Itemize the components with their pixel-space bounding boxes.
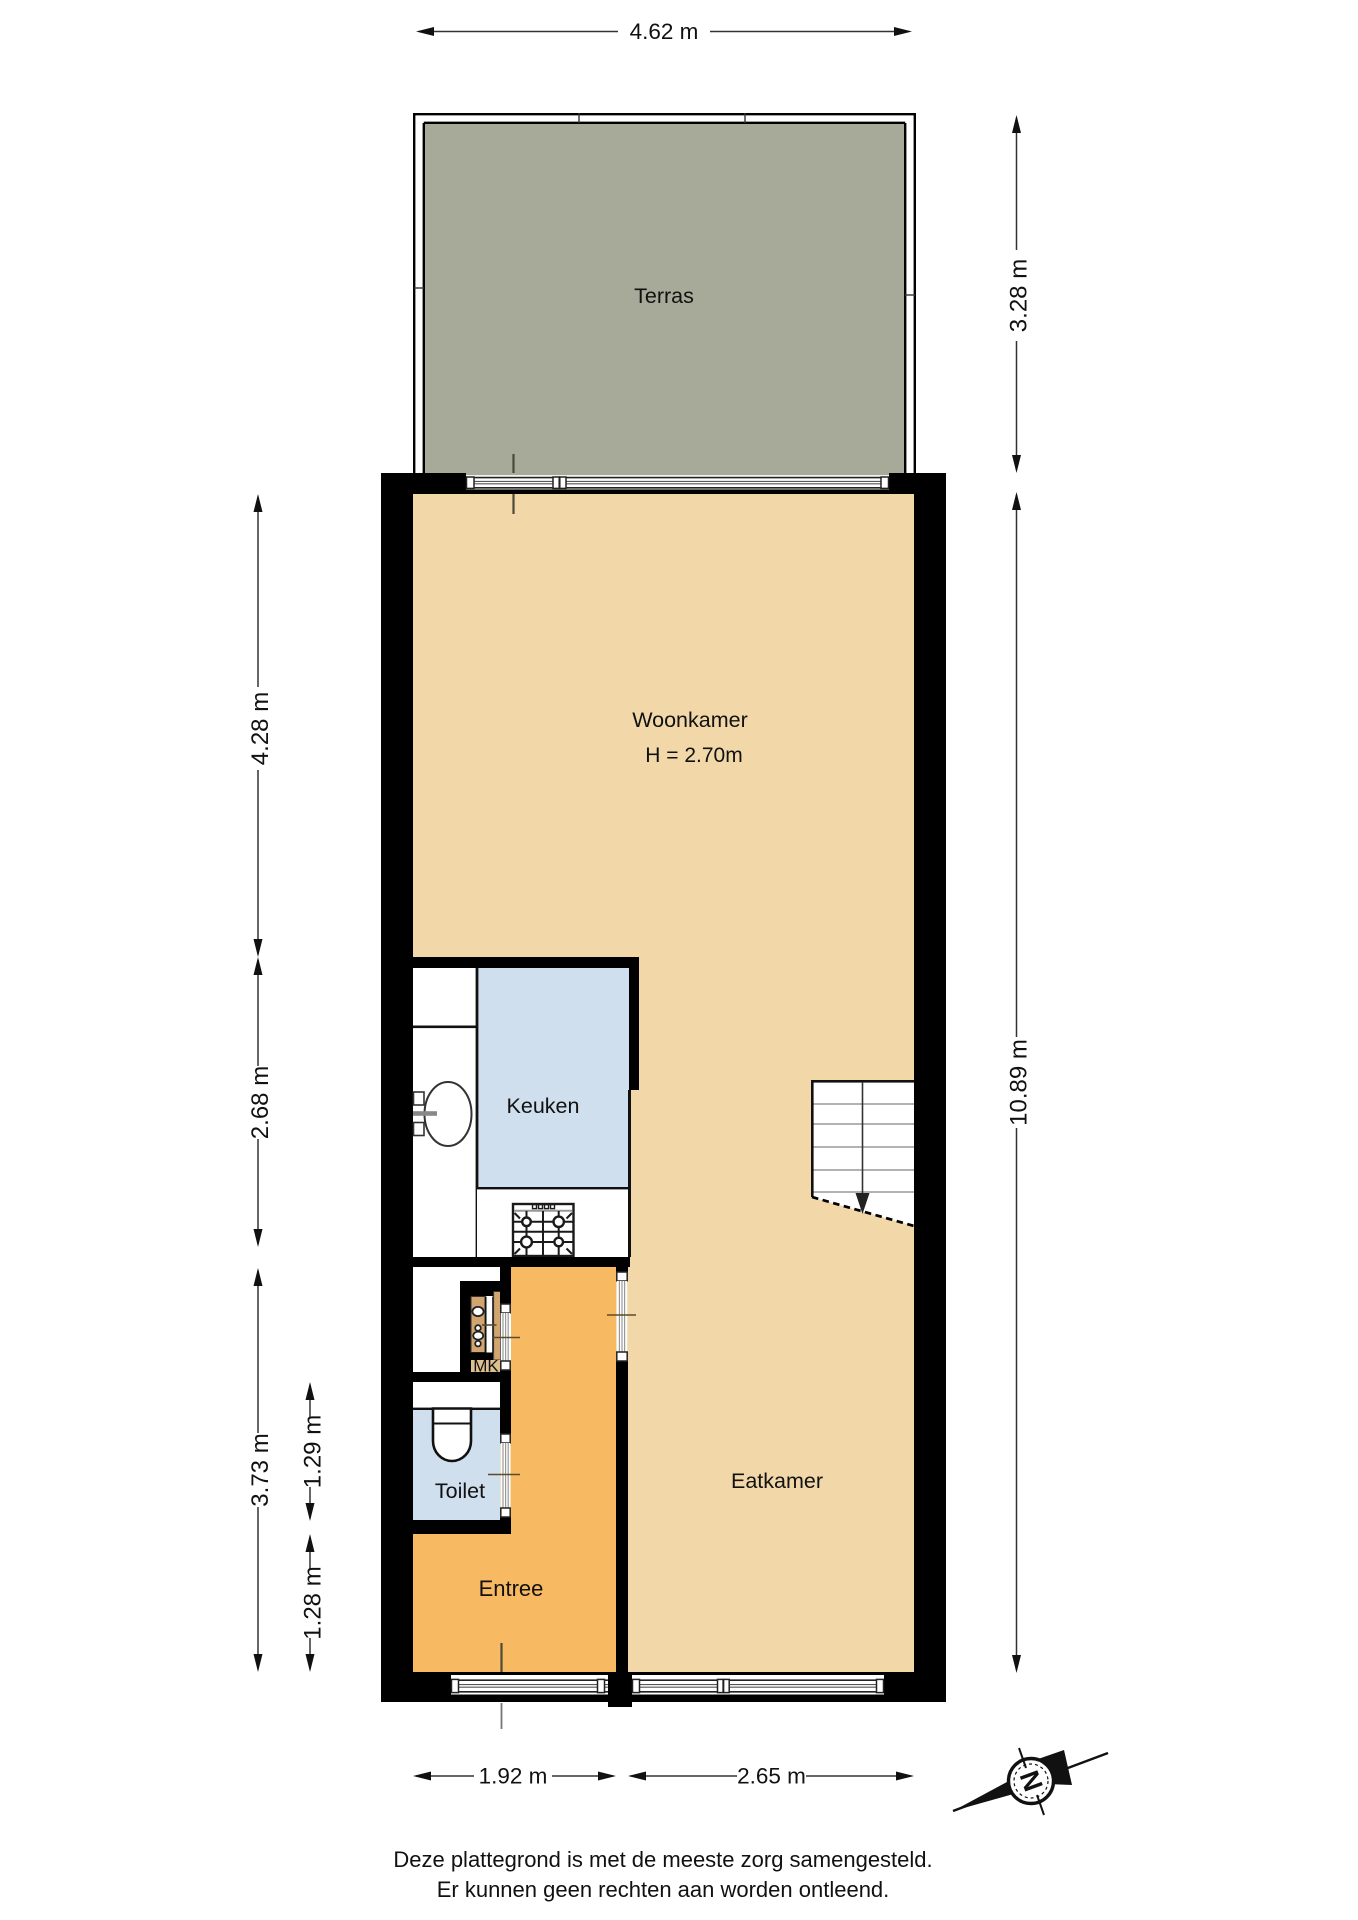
svg-text:2.65 m: 2.65 m [737, 1764, 806, 1789]
svg-text:1.92 m: 1.92 m [479, 1764, 548, 1789]
svg-text:H = 2.70m: H = 2.70m [645, 744, 742, 767]
svg-text:1.29 m: 1.29 m [300, 1415, 327, 1488]
svg-text:Terras: Terras [634, 284, 694, 308]
svg-text:Woonkamer: Woonkamer [632, 708, 748, 732]
svg-text:Deze plattegrond is met de mee: Deze plattegrond is met de meeste zorg s… [393, 1847, 932, 1872]
svg-text:4.62 m: 4.62 m [630, 19, 699, 44]
svg-text:2.68 m: 2.68 m [247, 1066, 274, 1139]
svg-text:Entree: Entree [479, 1576, 544, 1601]
svg-text:10.89 m: 10.89 m [1006, 1039, 1033, 1126]
svg-text:1.28 m: 1.28 m [300, 1566, 327, 1639]
svg-text:Toilet: Toilet [435, 1479, 485, 1503]
svg-text:3.73 m: 3.73 m [247, 1433, 274, 1506]
svg-text:4.28 m: 4.28 m [247, 692, 274, 765]
svg-text:Keuken: Keuken [507, 1094, 580, 1118]
svg-text:Er kunnen geen rechten aan wor: Er kunnen geen rechten aan worden ontlee… [437, 1877, 890, 1902]
svg-text:3.28 m: 3.28 m [1006, 259, 1033, 332]
svg-text:Eatkamer: Eatkamer [731, 1469, 823, 1493]
